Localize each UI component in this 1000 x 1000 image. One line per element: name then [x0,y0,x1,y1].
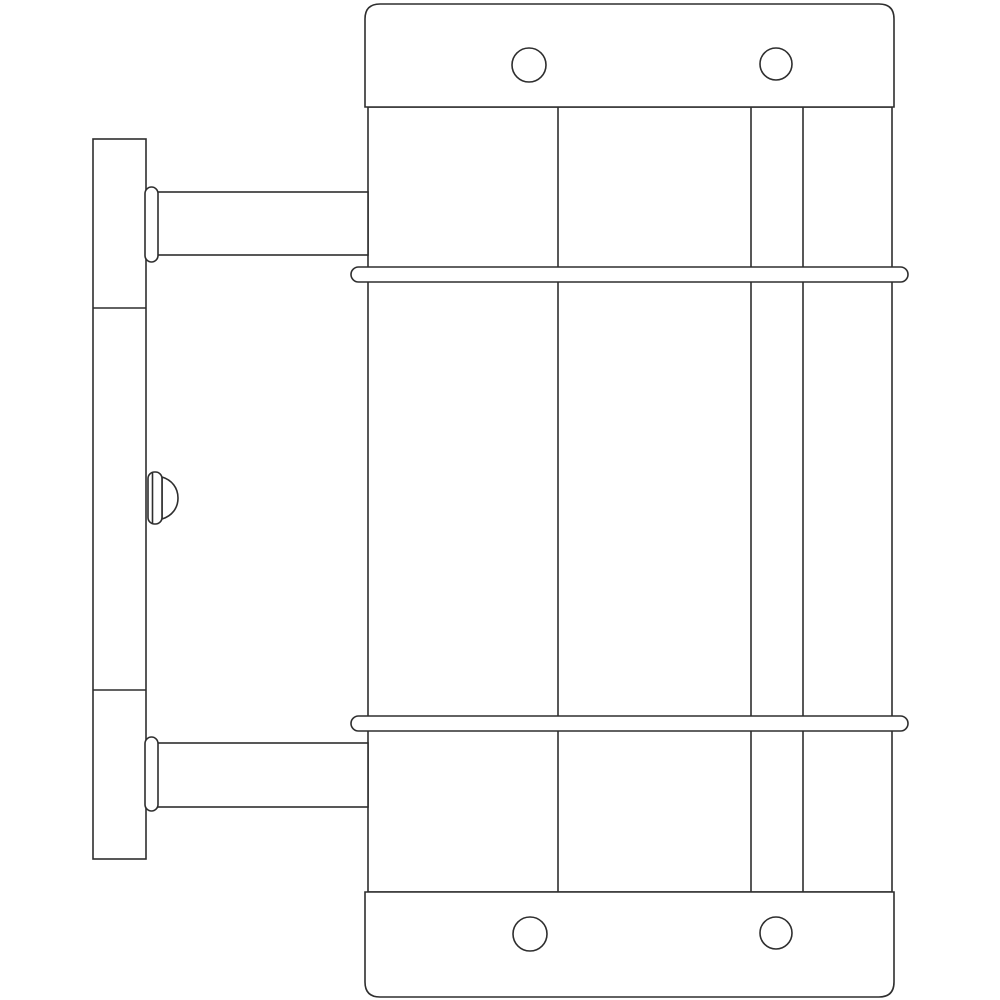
top-screw-hole-right [760,48,792,80]
upper-retaining-band [351,267,908,282]
knob-dome [162,477,178,519]
wall-plate [93,139,146,859]
bottom-screw-hole-left [513,917,547,951]
knob-base [148,472,162,524]
lower-retaining-band [351,716,908,731]
lower-arm-collar [145,737,158,811]
bottom-cap [365,892,894,997]
upper-arm [146,192,368,255]
top-cap [365,4,894,107]
lower-arm [146,743,368,807]
bottom-screw-hole-right [760,917,792,949]
body-outline [368,107,892,892]
top-screw-hole-left [512,48,546,82]
drawing-canvas [0,0,1000,1000]
upper-arm-collar [145,187,158,262]
technical-drawing [0,0,1000,1000]
